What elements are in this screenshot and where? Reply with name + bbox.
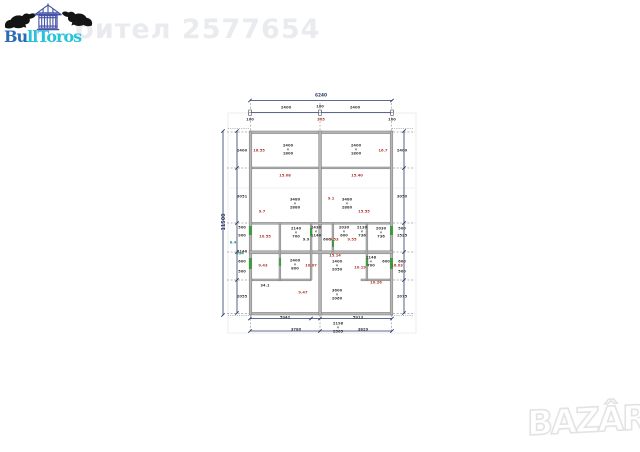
room-area-label: 15.40 xyxy=(351,174,363,178)
dimension-label: 100 xyxy=(246,118,254,122)
dimension-label: 2148 × 700 xyxy=(366,256,376,268)
dimension-label: 600 xyxy=(382,260,390,264)
room-area-label: 305 xyxy=(317,118,325,122)
dimension-label: 9.9 xyxy=(303,238,310,242)
dimension-label: 2198 × 2565 xyxy=(333,322,343,334)
room-area-label: 10.19 xyxy=(354,266,366,270)
dimension-label: 2030 × 600 xyxy=(339,226,349,238)
room-area-label: 394 xyxy=(236,252,244,256)
room-area-label: 8.4 xyxy=(230,241,237,245)
room-area-label: 15.55 xyxy=(358,210,370,214)
dimension-label: 2130 × 736 xyxy=(357,226,367,238)
dimension-label: 11500 xyxy=(221,213,226,230)
dimension-label: 3480 × 2880 xyxy=(342,198,352,210)
brand-name: BullToros xyxy=(4,27,81,46)
dimension-label: 5942 xyxy=(280,316,290,320)
dimension-label: 2400 xyxy=(397,149,407,153)
dimension-label: 2075 xyxy=(397,295,407,299)
room-area-label: 9.53 xyxy=(329,238,338,242)
room-area-label: 15.14 xyxy=(329,254,341,258)
bull-right-icon xyxy=(61,9,94,29)
dimension-label: 500 xyxy=(238,226,246,230)
floor-plan-labels: 6240240024001001003051001150024003051500… xyxy=(0,0,640,452)
room-area-label: 16.7 xyxy=(378,149,387,153)
dimension-label: 1400 × 2050 xyxy=(332,260,342,272)
dimension-label: 100 xyxy=(388,118,396,122)
dimension-label: 600 xyxy=(238,260,246,264)
brand-logo: BullToros xyxy=(2,2,124,48)
dimension-label: 3480 × 2880 xyxy=(290,198,300,210)
dimension-label: 500 xyxy=(238,270,246,274)
dimension-label: 2030 × 736 xyxy=(376,227,386,239)
room-area-label: 9.55 xyxy=(347,238,356,242)
room-area-label: 9.1 xyxy=(328,197,335,201)
room-area-label: 16.03 xyxy=(391,264,403,268)
room-area-label: 9.43 xyxy=(258,264,267,268)
room-area-label: 9.47 xyxy=(298,291,307,295)
room-area-label: 16.55 xyxy=(253,149,265,153)
dimension-label: 900 xyxy=(238,234,246,238)
brand-name-suffix: llToros xyxy=(27,27,81,46)
dimension-label: 500 xyxy=(398,227,406,231)
listing-photo-canvas: бител 2577654 62402400240010010030510011… xyxy=(0,0,640,452)
dimension-label: 2400 × 1800 xyxy=(351,144,361,156)
room-area-label: 9.7 xyxy=(259,210,266,214)
room-area-label: 10.07 xyxy=(305,264,317,268)
dimension-label: 1525 xyxy=(397,234,407,238)
dimension-label: 2400 × 1800 xyxy=(283,144,293,156)
dimension-label: 2400 xyxy=(237,149,247,153)
room-area-label: 10.55 xyxy=(259,235,271,239)
dimension-label: 2055 xyxy=(237,295,247,299)
dimension-label: 5913 xyxy=(353,316,363,320)
dimension-label: 3780 xyxy=(291,328,301,332)
bazar-logo-watermark: BAZÂR xyxy=(527,398,640,444)
dimension-label: 3600 × 2060 xyxy=(332,289,342,301)
dimension-label: 2400 xyxy=(350,106,360,110)
dimension-label: 3829 xyxy=(358,328,368,332)
brand-name-prefix: Bu xyxy=(4,27,27,46)
room-area-label: 10.26 xyxy=(370,281,382,285)
dimension-label: 6240 xyxy=(315,94,327,99)
dimension-label: 100 xyxy=(316,105,324,109)
dimension-label: 500 xyxy=(398,270,406,274)
dimension-label: 2400 × 800 xyxy=(290,259,300,271)
dimension-label: 2400 xyxy=(281,106,291,110)
dimension-label: 3050 xyxy=(397,195,407,199)
dimension-label: 2430 × 1146 xyxy=(311,226,321,238)
dimension-label: 2140 × 700 xyxy=(291,227,301,239)
dimension-label: 3051 xyxy=(237,195,247,199)
room-area-label: 15.08 xyxy=(279,174,291,178)
dimension-label: 34.1 xyxy=(260,284,269,288)
